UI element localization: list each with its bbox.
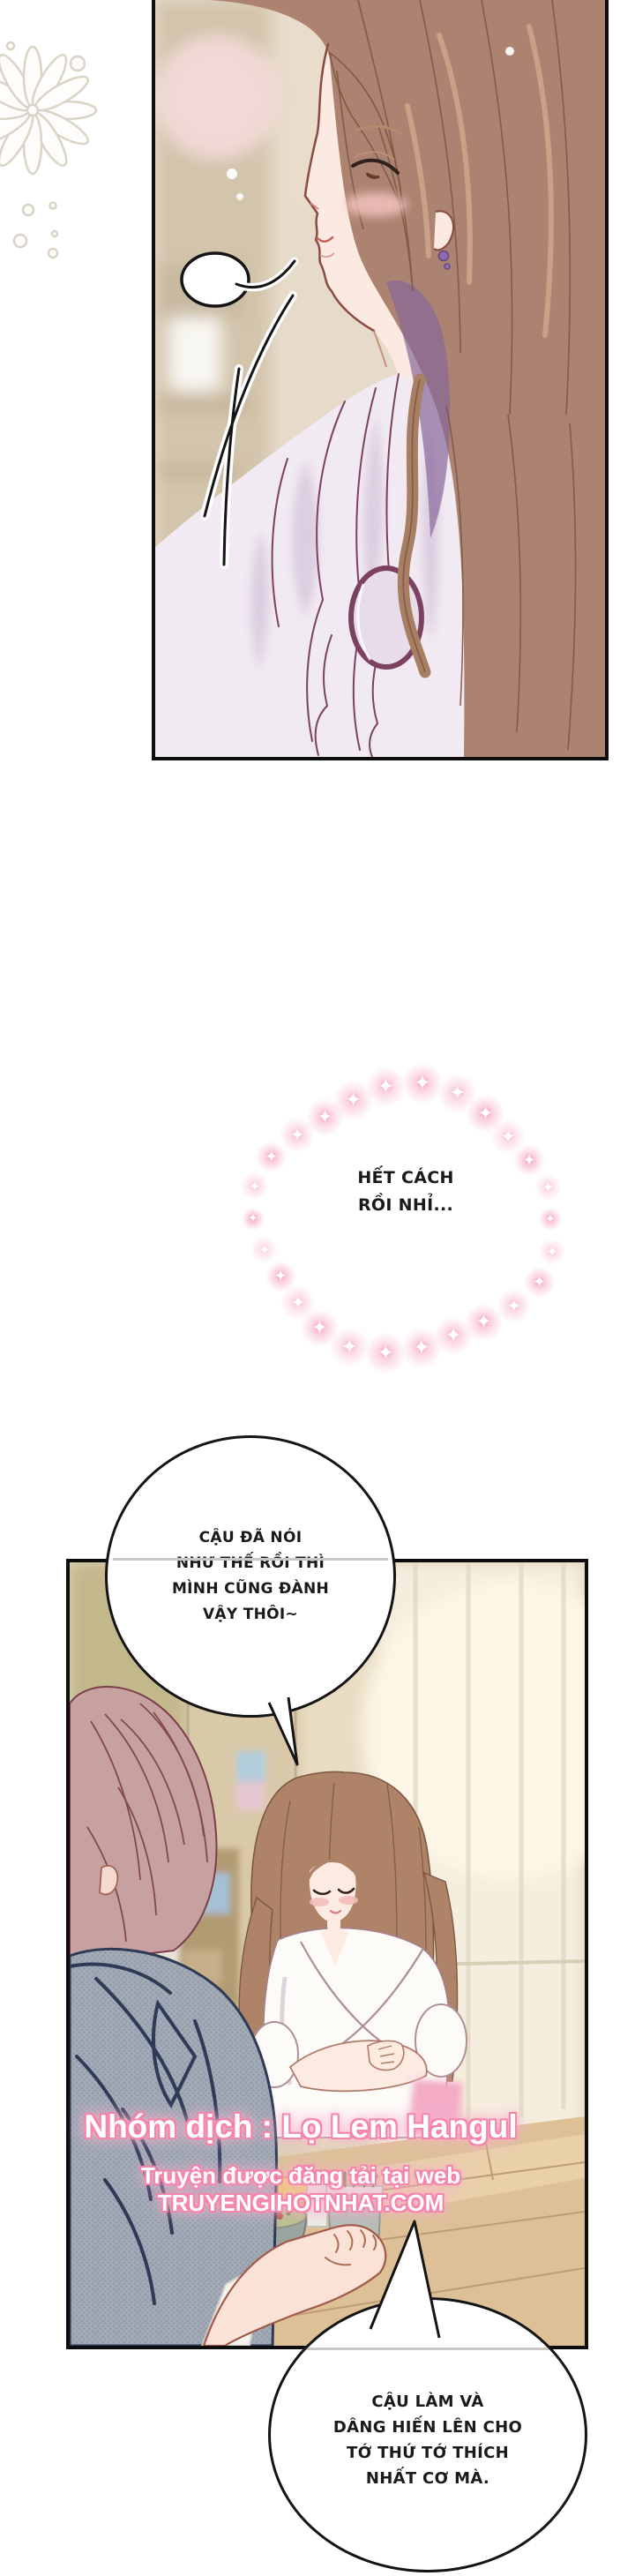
- sparkle-icon: ✦: [366, 1067, 407, 1107]
- sparkle-icon: ✦: [256, 1142, 287, 1172]
- sparkle-icon: ✦: [242, 1208, 265, 1231]
- speech-line: MÌNH CŨNG ĐÀNH: [172, 1576, 329, 1602]
- speech-bubble-bottom-tail: [358, 2211, 452, 2345]
- sparkle-icon: ✦: [524, 1267, 555, 1298]
- sparkle-icon: ✦: [265, 1262, 296, 1292]
- panel-border-ghost: [113, 1558, 388, 1561]
- website-credit: Truyện được đăng tải tại web TRUYENGIHOT…: [26, 2162, 575, 2217]
- sparkle-icon: ✦: [401, 1328, 442, 1368]
- speech-line: VẬY THÔI~: [172, 1602, 329, 1628]
- thought-line: RỒI NHỈ...: [305, 1192, 506, 1219]
- speech-line: CẬU LÀM VÀ: [333, 2389, 522, 2415]
- panel-top-illustration: [152, 0, 609, 760]
- sparkle-icon: ✦: [241, 1172, 268, 1200]
- sparkle-icon: ✦: [365, 1333, 406, 1374]
- speech-line: CẬU ĐÃ NÓI: [172, 1525, 329, 1551]
- panel-border-ghost: [276, 2348, 579, 2350]
- thought-line: HẾT CÁCH: [305, 1164, 506, 1192]
- speech-bubble-top: CẬU ĐÃ NÓI NHƯ THẾ RỒI THÌ MÌNH CŨNG ĐÀN…: [105, 1435, 396, 1718]
- sparkle-icon: ✦: [534, 1174, 562, 1202]
- speech-line: DÂNG HIẾN LÊN CHO: [333, 2415, 522, 2440]
- flower-doodle-icon: [0, 26, 128, 282]
- thought-bubble-text: HẾT CÁCH RỒI NHỈ...: [305, 1164, 506, 1219]
- sparkle-ring: ✦✦✦✦✦✦✦✦✦✦✦✦✦✦✦✦✦✦✦✦✦✦✦✦✦✦: [247, 1063, 561, 1377]
- speech-bubble-top-tail: [258, 1687, 313, 1771]
- speech-bubble-top-text: CẬU ĐÃ NÓI NHƯ THẾ RỒI THÌ MÌNH CŨNG ĐÀN…: [172, 1525, 329, 1628]
- translator-credit: Nhóm dịch : Lọ Lem Hangul: [53, 2108, 549, 2145]
- sparkle-icon: ✦: [402, 1063, 443, 1104]
- speech-line: NHẤT CƠ MÀ.: [333, 2466, 522, 2491]
- speech-bubble-bottom-text: CẬU LÀM VÀ DÂNG HIẾN LÊN CHO TỚ THỨ TỚ T…: [333, 2378, 522, 2491]
- sparkle-icon: ✦: [513, 1145, 544, 1176]
- panel1-art: [155, 0, 605, 757]
- comic-page: ✦✦✦✦✦✦✦✦✦✦✦✦✦✦✦✦✦✦✦✦✦✦✦✦✦✦ HẾT CÁCH RỒI …: [0, 0, 635, 2576]
- sparkle-icon: ✦: [250, 1236, 278, 1263]
- sparkle-icon: ✦: [539, 1239, 566, 1266]
- speech-line: NHƯ THẾ RỒI THÌ: [172, 1551, 329, 1576]
- sparkle-icon: ✦: [539, 1208, 562, 1231]
- speech-line: TỚ THỨ TỚ THÍCH: [333, 2440, 522, 2466]
